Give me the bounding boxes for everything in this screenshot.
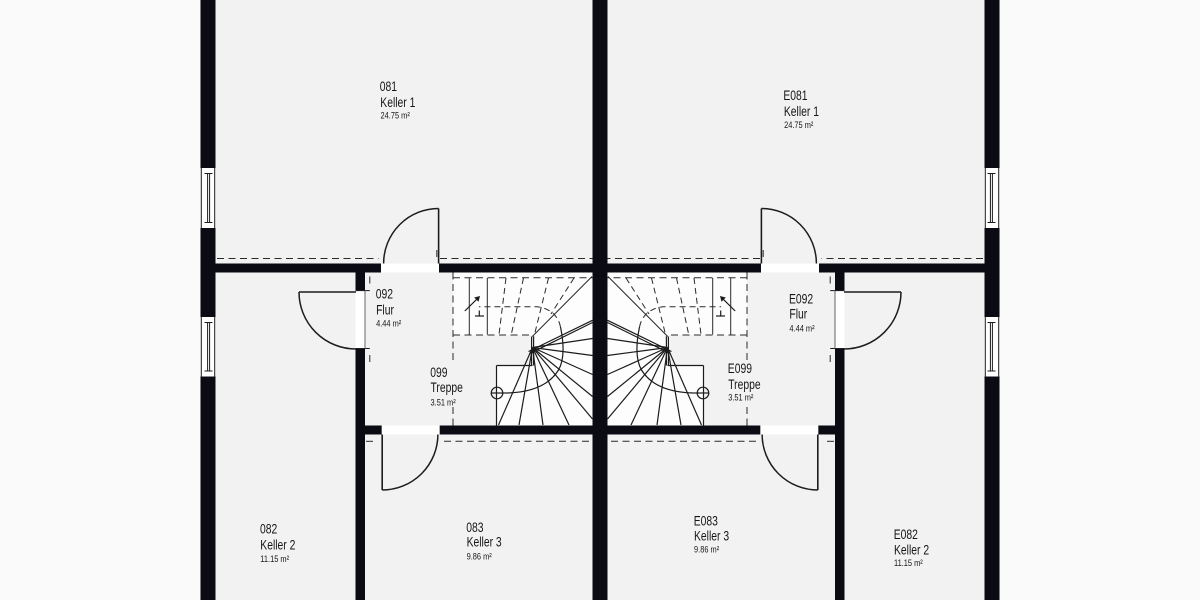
svg-text:Keller 2: Keller 2 [894, 542, 929, 558]
svg-text:Flur: Flur [789, 306, 807, 322]
svg-text:4.44 m²: 4.44 m² [376, 318, 401, 329]
svg-text:3.51 m²: 3.51 m² [728, 392, 753, 403]
svg-text:092: 092 [376, 286, 393, 302]
svg-text:E099: E099 [728, 360, 752, 376]
svg-text:9.86 m²: 9.86 m² [467, 550, 492, 561]
svg-text:Keller 1: Keller 1 [784, 104, 819, 120]
svg-text:Treppe: Treppe [728, 376, 761, 392]
svg-text:Keller 3: Keller 3 [467, 534, 502, 550]
svg-text:E082: E082 [894, 526, 918, 542]
svg-text:Keller 2: Keller 2 [260, 537, 295, 553]
svg-text:3.51 m²: 3.51 m² [431, 397, 456, 408]
svg-text:Keller 1: Keller 1 [380, 94, 415, 110]
svg-text:E083: E083 [694, 513, 718, 529]
svg-text:4.44 m²: 4.44 m² [789, 322, 814, 333]
svg-text:E081: E081 [783, 87, 807, 103]
svg-text:081: 081 [380, 78, 397, 94]
svg-text:083: 083 [466, 519, 483, 535]
svg-text:11.15 m²: 11.15 m² [894, 557, 923, 568]
svg-text:24.75 m²: 24.75 m² [784, 119, 813, 130]
svg-text:11.15 m²: 11.15 m² [260, 553, 289, 564]
svg-text:E092: E092 [789, 291, 813, 307]
svg-text:Flur: Flur [376, 302, 394, 318]
svg-text:099: 099 [430, 365, 447, 381]
svg-text:9.86 m²: 9.86 m² [694, 544, 719, 555]
svg-text:24.75 m²: 24.75 m² [381, 109, 410, 120]
svg-text:082: 082 [260, 521, 277, 537]
svg-text:Keller 3: Keller 3 [694, 528, 729, 544]
svg-text:Treppe: Treppe [431, 379, 464, 395]
